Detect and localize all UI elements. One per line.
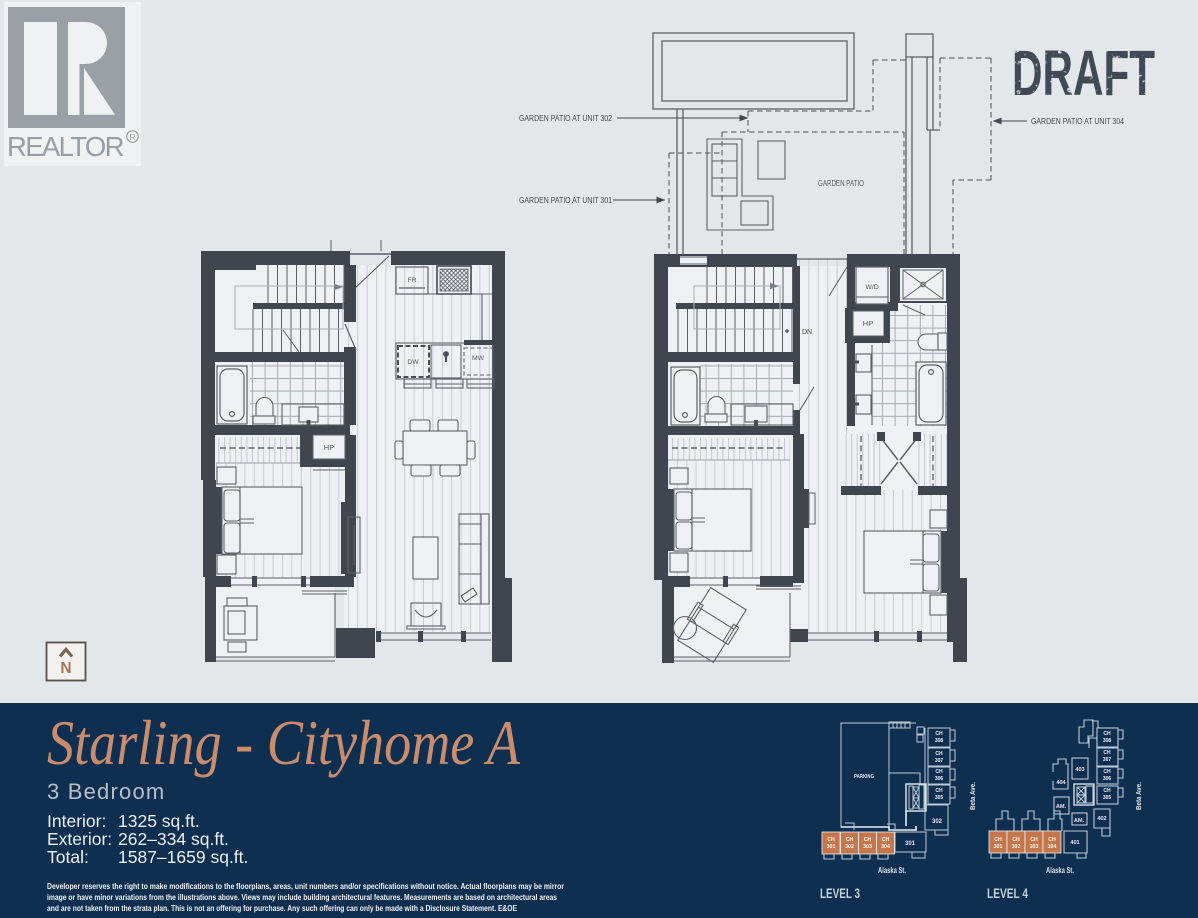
svg-text:401: 401 — [1070, 840, 1079, 846]
svg-text:302: 302 — [1012, 844, 1021, 850]
svg-text:CH: CH — [994, 837, 1002, 843]
svg-text:image or have minor variations: image or have minor variations from the … — [47, 892, 557, 902]
svg-text:CH: CH — [864, 837, 872, 843]
svg-text:DW: DW — [407, 359, 419, 366]
svg-text:303: 303 — [863, 844, 872, 850]
svg-text:302: 302 — [845, 844, 854, 850]
svg-text:HP: HP — [324, 443, 334, 452]
svg-text:308: 308 — [935, 738, 944, 744]
svg-text:305: 305 — [935, 795, 944, 801]
svg-text:CH: CH — [1103, 788, 1111, 794]
svg-text:307: 307 — [1103, 757, 1112, 763]
svg-text:403: 403 — [1075, 767, 1084, 773]
svg-text:Exterior:: Exterior: — [47, 829, 112, 849]
svg-text:CH: CH — [935, 769, 943, 775]
svg-text:CH: CH — [1012, 837, 1020, 843]
svg-text:CH: CH — [1103, 769, 1111, 775]
svg-text:CH: CH — [935, 751, 943, 757]
svg-text:CH: CH — [846, 837, 854, 843]
svg-text:301: 301 — [905, 841, 916, 847]
svg-text:404: 404 — [1056, 780, 1066, 786]
svg-text:W/D: W/D — [865, 284, 878, 291]
svg-text:GARDEN PATIO AT UNIT 301: GARDEN PATIO AT UNIT 301 — [519, 196, 612, 205]
svg-text:308: 308 — [1103, 738, 1112, 744]
svg-text:CH: CH — [935, 731, 943, 737]
svg-text:LEVEL 4: LEVEL 4 — [987, 886, 1028, 901]
svg-text:302: 302 — [932, 819, 943, 825]
svg-text:DN: DN — [802, 329, 812, 336]
svg-text:LEVEL 3: LEVEL 3 — [820, 886, 860, 901]
svg-text:Beta Ave.: Beta Ave. — [968, 782, 977, 810]
svg-text:R: R — [130, 133, 136, 142]
svg-text:N: N — [60, 660, 71, 677]
svg-text:1325 sq.ft.: 1325 sq.ft. — [118, 811, 200, 831]
svg-text:CH: CH — [1048, 837, 1056, 843]
svg-text:Alaska St.: Alaska St. — [1046, 866, 1074, 875]
svg-text:305: 305 — [1103, 795, 1112, 801]
svg-text:CH: CH — [1030, 837, 1038, 843]
svg-text:MW: MW — [472, 355, 485, 362]
svg-text:Interior:: Interior: — [47, 811, 106, 831]
svg-text:402: 402 — [1097, 816, 1106, 822]
svg-text:262–334 sq.ft.: 262–334 sq.ft. — [118, 829, 229, 849]
svg-text:3 Bedroom: 3 Bedroom — [47, 779, 165, 804]
svg-text:AM.: AM. — [1074, 818, 1085, 824]
svg-text:FR: FR — [407, 277, 416, 284]
svg-text:Total:: Total: — [47, 847, 89, 867]
svg-text:HP: HP — [863, 319, 873, 328]
svg-text:Beta Ave.: Beta Ave. — [1134, 782, 1143, 810]
svg-text:GARDEN PATIO AT UNIT 304: GARDEN PATIO AT UNIT 304 — [1031, 117, 1124, 126]
svg-text:Starling - Cityhome A: Starling - Cityhome A — [47, 707, 521, 778]
svg-text:PARKING: PARKING — [854, 774, 874, 780]
svg-text:306: 306 — [935, 776, 944, 782]
svg-text:GARDEN PATIO AT UNIT 302: GARDEN PATIO AT UNIT 302 — [519, 114, 612, 123]
svg-text:301: 301 — [827, 844, 836, 850]
svg-text:1587–1659 sq.ft.: 1587–1659 sq.ft. — [118, 847, 248, 867]
svg-text:307: 307 — [935, 758, 944, 764]
svg-text:301: 301 — [994, 844, 1003, 850]
svg-text:and are not taken from the str: and are not taken from the strata plan. … — [47, 903, 517, 913]
svg-text:CH: CH — [827, 837, 835, 843]
svg-text:AM.: AM. — [1056, 804, 1067, 810]
svg-text:Developer reserves the right t: Developer reserves the right to make mod… — [47, 881, 565, 891]
svg-text:306: 306 — [1103, 776, 1112, 782]
svg-text:Alaska St.: Alaska St. — [878, 866, 906, 875]
svg-text:303: 303 — [1030, 844, 1039, 850]
svg-text:CH: CH — [935, 788, 943, 794]
svg-text:CH: CH — [882, 837, 890, 843]
svg-text:REALTOR: REALTOR — [7, 131, 125, 162]
svg-text:CH: CH — [1103, 750, 1111, 756]
svg-text:304: 304 — [1048, 844, 1057, 850]
svg-text:DRAFT: DRAFT — [1012, 37, 1155, 109]
svg-text:CH: CH — [1103, 731, 1111, 737]
svg-text:GARDEN PATIO: GARDEN PATIO — [818, 178, 864, 188]
svg-text:304: 304 — [881, 844, 890, 850]
